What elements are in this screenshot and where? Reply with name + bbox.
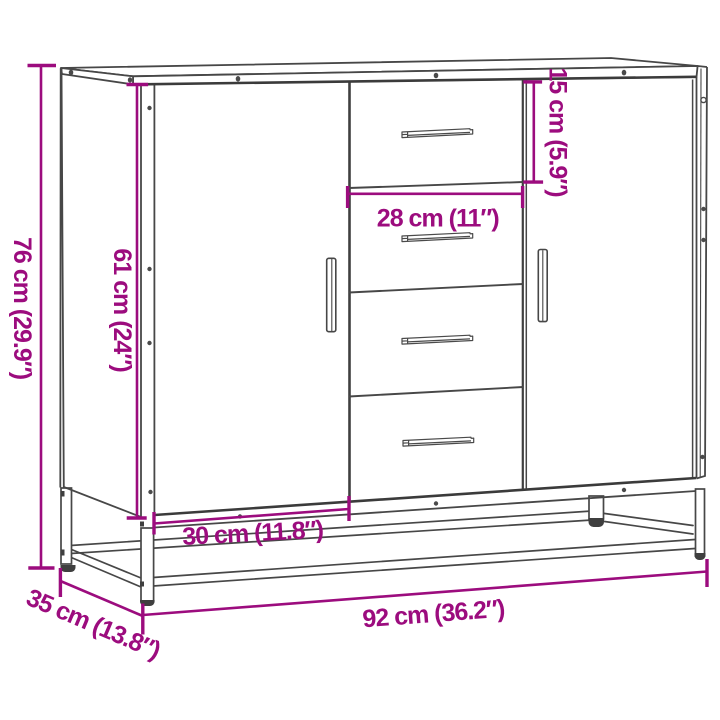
svg-text:61 cm (24″): 61 cm (24″)	[108, 248, 136, 372]
svg-text:28 cm (11″): 28 cm (11″)	[377, 205, 500, 233]
svg-text:15 cm (5.9″): 15 cm (5.9″)	[544, 67, 572, 197]
svg-text:76 cm (29.9″): 76 cm (29.9″)	[8, 237, 36, 380]
